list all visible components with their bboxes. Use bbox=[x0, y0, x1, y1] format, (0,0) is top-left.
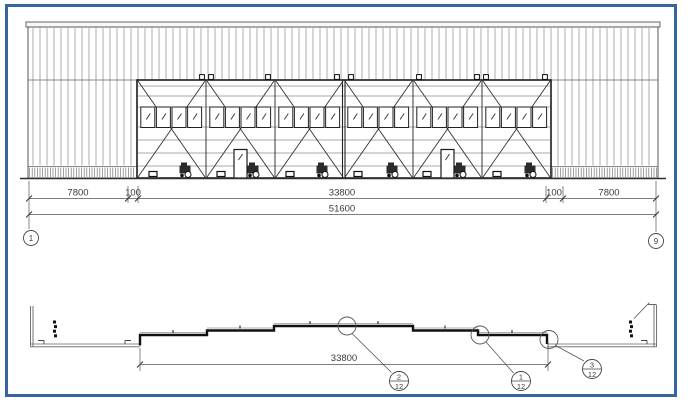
floor-guide-icon bbox=[217, 172, 225, 177]
door-motor-icon bbox=[388, 163, 394, 166]
door-roller-icon bbox=[349, 75, 354, 80]
plan-left-wall bbox=[31, 306, 34, 347]
annotation-mark bbox=[630, 325, 633, 328]
door-roller-icon bbox=[200, 75, 205, 80]
plan-right-rail bbox=[547, 344, 657, 347]
annotation-mark bbox=[53, 321, 56, 324]
plan-dim-33800: 33800 bbox=[331, 353, 357, 364]
floor-guide-icon bbox=[354, 172, 362, 177]
floor-guide-icon bbox=[423, 172, 431, 177]
bubble-sheet: 12 bbox=[395, 382, 403, 391]
door-roller-icon bbox=[543, 75, 548, 80]
personnel-door bbox=[234, 150, 247, 179]
hangar-door bbox=[137, 75, 551, 178]
motor-wheel-icon bbox=[525, 174, 529, 178]
door-roller-icon bbox=[335, 75, 340, 80]
door-motor-icon bbox=[318, 163, 324, 166]
motor-wheel-icon bbox=[455, 174, 459, 178]
motor-wheel-icon bbox=[248, 174, 252, 178]
annotation-mark bbox=[54, 334, 57, 337]
plan-view: 33800 2 12 1 12 3 12 bbox=[31, 303, 657, 392]
detail-bubble-3-12: 3 12 bbox=[583, 360, 602, 380]
bubble-number: 3 bbox=[590, 361, 594, 370]
door-motor-icon bbox=[456, 163, 462, 166]
floor-guide-icon bbox=[286, 172, 294, 177]
dim-51600-total: 51600 bbox=[329, 204, 355, 215]
door-leaves-plan bbox=[140, 326, 547, 346]
annotation-mark bbox=[629, 330, 632, 333]
bubble-sheet: 12 bbox=[588, 370, 596, 379]
roof-cap bbox=[26, 22, 660, 27]
plan-right-wall bbox=[648, 305, 657, 348]
personnel-door bbox=[441, 150, 454, 179]
detail-bubble-1-12: 1 12 bbox=[512, 372, 531, 392]
annotation-mark bbox=[629, 321, 632, 324]
motor-wheel-icon bbox=[180, 174, 184, 178]
door-roller-icon bbox=[266, 75, 271, 80]
motor-wheel-icon bbox=[392, 172, 398, 178]
elevation-view: 7800 100 33800 100 7800 51600 1 9 bbox=[20, 22, 666, 368]
door-motor-icon bbox=[249, 163, 255, 166]
floor-guide-icon bbox=[149, 172, 157, 177]
dim-100-right: 100 bbox=[546, 188, 562, 199]
motor-wheel-icon bbox=[387, 174, 391, 178]
door-roller-icon bbox=[475, 75, 480, 80]
door-roller-icon bbox=[417, 75, 422, 80]
dim-7800-right: 7800 bbox=[598, 188, 619, 199]
dim-33800-door: 33800 bbox=[329, 188, 355, 199]
door-motor-icon bbox=[181, 163, 187, 166]
floor-guide-icon bbox=[493, 172, 501, 177]
grid-label-9: 9 bbox=[654, 237, 659, 246]
door-frame bbox=[137, 80, 551, 178]
detail-circle-3 bbox=[540, 331, 558, 349]
motor-wheel-icon bbox=[317, 174, 321, 178]
dim-100-left: 100 bbox=[125, 188, 141, 199]
bubble-number: 2 bbox=[397, 373, 401, 382]
door-roller-icon bbox=[484, 75, 489, 80]
motor-wheel-icon bbox=[253, 172, 259, 178]
dim-7800-left: 7800 bbox=[67, 188, 88, 199]
plan-left-rail bbox=[31, 344, 141, 347]
rail-clamp-marks bbox=[38, 341, 647, 345]
annotation-mark bbox=[54, 325, 57, 328]
annotation-leader-right bbox=[634, 303, 650, 319]
grid-bubble-left: 1 bbox=[24, 231, 39, 246]
door-motor-icon bbox=[526, 163, 532, 166]
annotation-mark bbox=[630, 334, 633, 337]
detail-leaders bbox=[352, 334, 584, 374]
dimension-ticks bbox=[26, 196, 659, 368]
door-roller-icon bbox=[209, 75, 214, 80]
motor-wheel-icon bbox=[185, 172, 191, 178]
drawing-canvas: 7800 100 33800 100 7800 51600 1 9 bbox=[0, 0, 690, 415]
detail-bubble-2-12: 2 12 bbox=[390, 372, 409, 392]
motor-wheel-icon bbox=[322, 172, 328, 178]
annotation-mark bbox=[53, 330, 56, 333]
motor-wheel-icon bbox=[460, 172, 466, 178]
bubble-number: 1 bbox=[519, 373, 523, 382]
grid-label-1: 1 bbox=[29, 234, 34, 243]
bubble-sheet: 12 bbox=[517, 382, 525, 391]
motor-wheel-icon bbox=[530, 172, 536, 178]
technical-drawing: 7800 100 33800 100 7800 51600 1 9 bbox=[0, 0, 690, 415]
grid-bubble-right: 9 bbox=[649, 234, 664, 249]
